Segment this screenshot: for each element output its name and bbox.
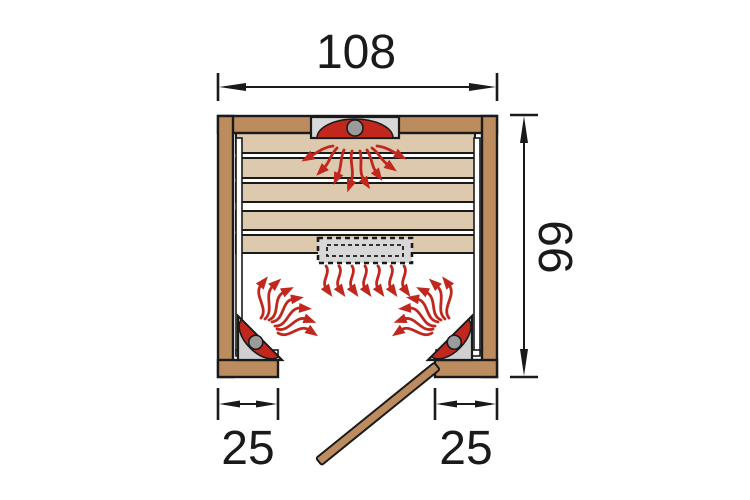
heat-arrow	[325, 266, 328, 288]
heat-arrow	[377, 266, 380, 288]
bench	[236, 133, 475, 253]
dimension-arrowhead	[219, 83, 246, 91]
floor-plan-canvas: 108 99 25 25	[0, 0, 750, 500]
wall-bottom-right-segment	[435, 360, 497, 377]
dimension-depth: 99	[510, 115, 583, 377]
heat-arrow	[390, 266, 393, 288]
heat-arrow	[364, 266, 367, 288]
wall-bottom-left-segment	[218, 360, 278, 377]
left-corner-heater	[232, 316, 282, 366]
heat-arrow	[338, 266, 341, 288]
heat-arrow	[403, 266, 406, 288]
dimension-arrowhead	[520, 116, 528, 143]
dimension-arrowhead	[256, 401, 277, 408]
bench-slat	[236, 158, 475, 178]
dimension-arrowhead	[436, 401, 457, 408]
wall-lining-right	[474, 138, 480, 354]
underbench-heater-panel	[318, 238, 412, 263]
underbench-heater-arrows	[325, 266, 406, 288]
heat-arrow	[437, 286, 445, 319]
heat-arrow	[447, 285, 452, 318]
dimension-width: 108	[218, 26, 497, 101]
rear-heater	[311, 117, 399, 138]
sauna-floor-plan-diagram: 108 99 25 25	[0, 0, 750, 500]
dimension-arrowhead	[475, 401, 496, 408]
dimension-left-segment-label: 25	[221, 422, 274, 475]
left-corner-heater-arrows	[259, 285, 309, 335]
dimension-right-segment-label: 25	[439, 422, 492, 475]
dimension-width-label: 108	[316, 26, 396, 79]
wall-left	[218, 116, 233, 377]
bench-slat	[236, 183, 475, 202]
wall-right	[482, 116, 497, 377]
heat-arrow	[351, 266, 354, 288]
heat-arrow	[265, 286, 273, 319]
heat-arrow	[259, 285, 264, 318]
dimension-arrowhead	[219, 401, 240, 408]
door	[316, 363, 440, 466]
bench-slat	[236, 211, 475, 230]
door-leaf	[316, 363, 440, 466]
dimension-depth-label: 99	[530, 220, 583, 273]
underbench-heater	[318, 238, 412, 263]
dimension-arrowhead	[469, 83, 496, 91]
right-corner-heater-arrows	[401, 285, 451, 335]
dimension-arrowhead	[520, 349, 528, 376]
right-corner-heater	[428, 316, 478, 366]
rear-heater-knob	[347, 120, 363, 136]
dimension-left-segment: 25	[218, 388, 278, 475]
heat-arrow	[351, 151, 352, 182]
dimension-right-segment: 25	[435, 388, 497, 475]
